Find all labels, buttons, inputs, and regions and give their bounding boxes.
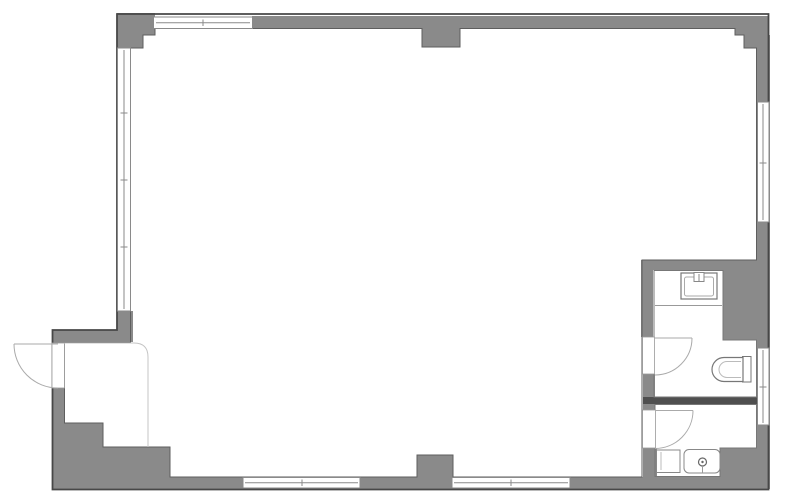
window-bottom-left bbox=[243, 478, 360, 489]
toilet-door-opening bbox=[643, 337, 655, 374]
window-bottom-right bbox=[452, 478, 570, 489]
bottom-right-corner-block bbox=[720, 448, 770, 489]
entrance-door-opening bbox=[52, 343, 65, 388]
bathroom-top-wall bbox=[641, 260, 757, 270]
bottom-wall bbox=[52, 477, 770, 489]
kitchenette-door-opening bbox=[643, 410, 656, 448]
washbasin bbox=[681, 273, 717, 300]
window-left bbox=[118, 48, 131, 311]
toilet-kitchen-partition-wall bbox=[643, 397, 757, 404]
floor-plan-canvas bbox=[0, 0, 787, 501]
toilet bbox=[712, 357, 751, 383]
top-left-corner-column-lower bbox=[117, 35, 143, 48]
window-right-upper bbox=[758, 102, 770, 222]
bathroom-left-wall-upper bbox=[641, 260, 653, 337]
entry-top-wall bbox=[52, 330, 133, 342]
top-wall bbox=[252, 16, 735, 29]
entry-step-wall-upper bbox=[52, 423, 103, 447]
toilet-tank bbox=[743, 357, 752, 383]
kitchen-left-wall-upper bbox=[643, 404, 655, 410]
pipe-shaft-block bbox=[723, 270, 768, 340]
entry-step-wall-lower bbox=[52, 447, 170, 477]
top-left-corner-column bbox=[117, 13, 155, 35]
kitchen-counter bbox=[657, 450, 721, 474]
kitchen-unit bbox=[657, 450, 681, 473]
floor-plan bbox=[0, 0, 787, 501]
top-pillar bbox=[422, 28, 460, 47]
window-top bbox=[154, 17, 253, 29]
kitchen-sink-drain-dot bbox=[701, 461, 703, 463]
window-right-lower bbox=[758, 348, 770, 425]
bathroom-left-wall-mid bbox=[643, 374, 655, 398]
faucet-icon bbox=[694, 273, 704, 282]
bottom-pillar bbox=[417, 455, 453, 477]
top-right-corner-column bbox=[735, 16, 768, 35]
